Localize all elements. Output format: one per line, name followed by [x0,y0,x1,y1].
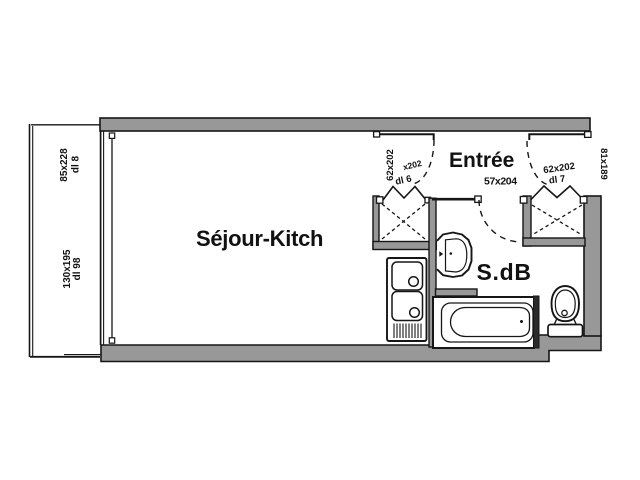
svg-text:S.dB: S.dB [477,259,532,285]
svg-text:dl 7: dl 7 [548,173,566,186]
svg-text:Séjour-Kitch: Séjour-Kitch [196,226,323,251]
svg-text:81x189: 81x189 [598,148,609,180]
svg-text:x202: x202 [402,158,423,172]
svg-text:dl 8: dl 8 [71,155,82,173]
svg-text:dl 98: dl 98 [72,257,83,280]
svg-text:Entrée: Entrée [449,149,514,172]
svg-text:dl 6: dl 6 [394,173,412,187]
svg-text:57x204: 57x204 [484,176,517,188]
svg-text:85x228: 85x228 [59,148,70,182]
